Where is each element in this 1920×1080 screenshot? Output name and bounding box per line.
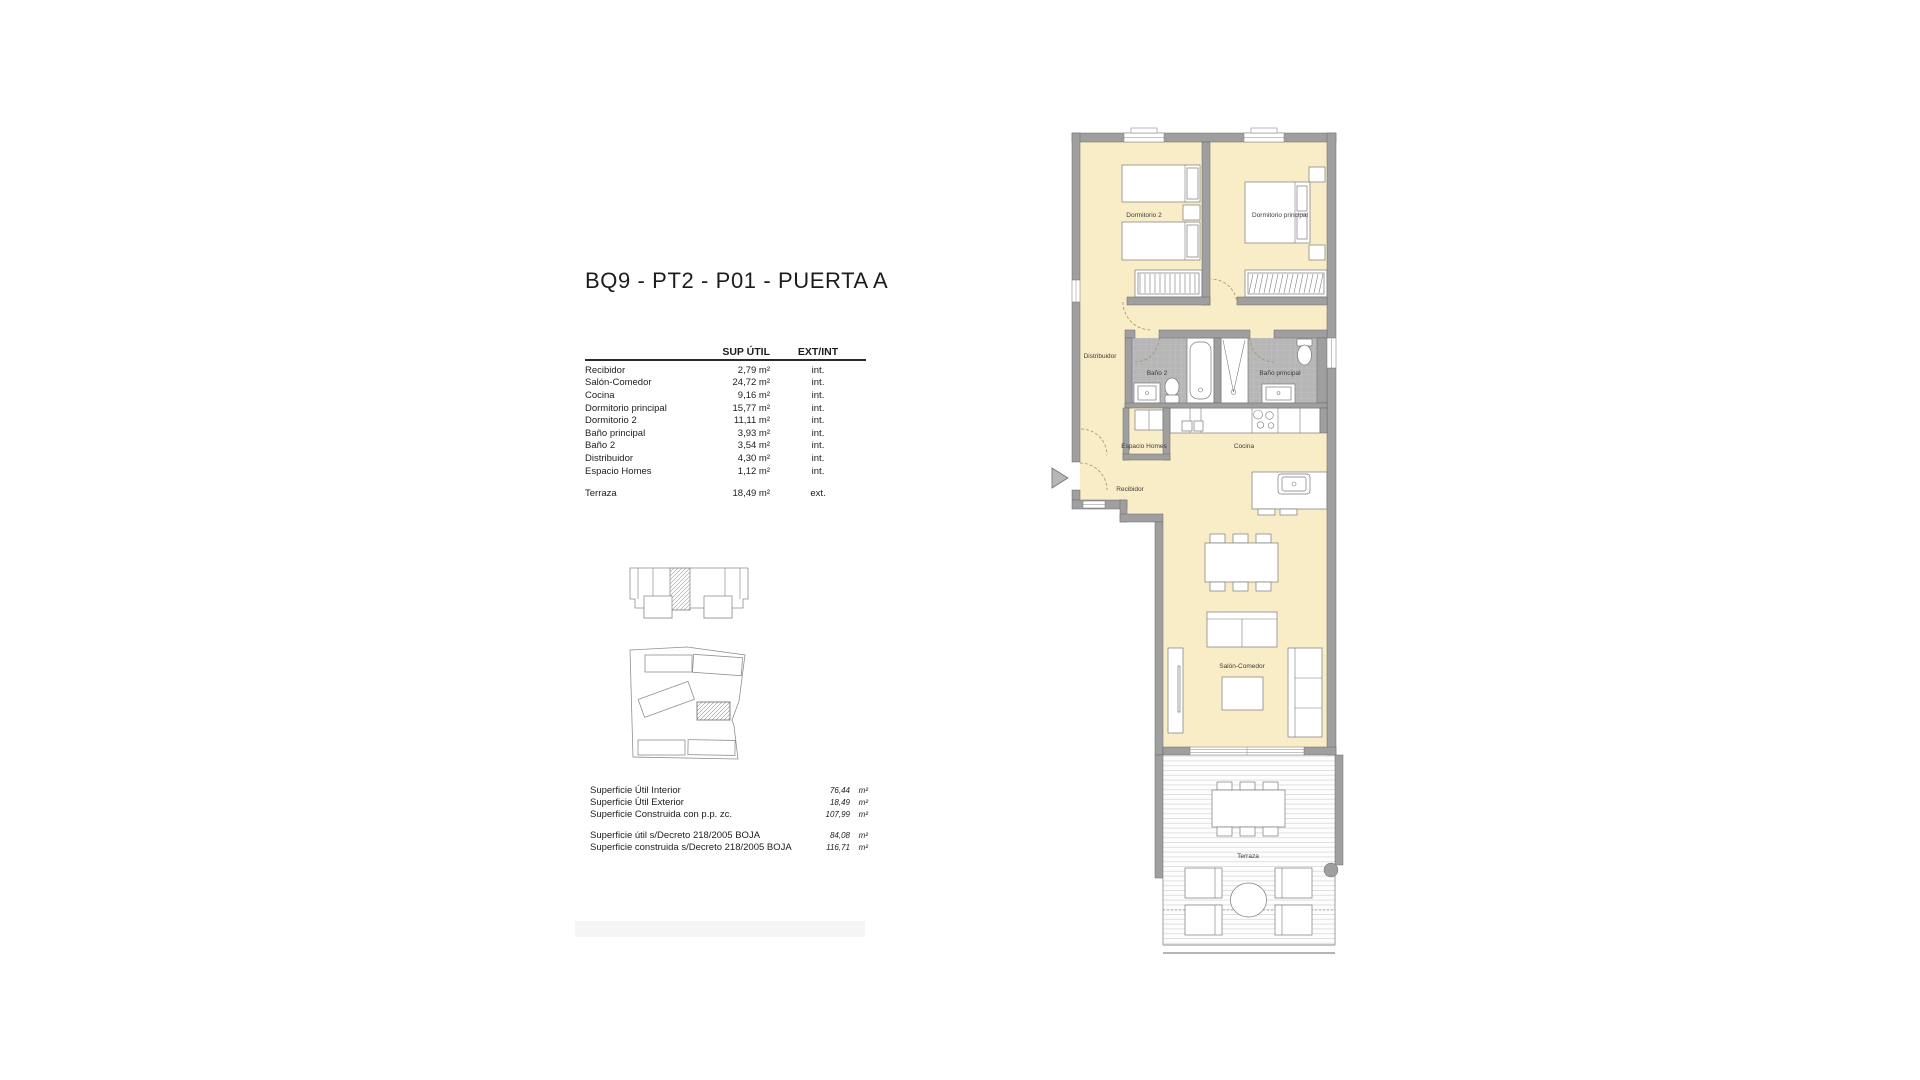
table-row-terraza: Terraza18,49 m²ext. [585,487,866,500]
site-building-highlighted [697,702,730,720]
summary-row: Superficie Construida con p.p. zc.107,99… [590,808,868,820]
kitchen-island [1252,472,1327,515]
room-label-dormitorio-2: Dormitorio 2 [1126,212,1162,219]
surface-summary: Superficie Útil Interior76,44m² Superfic… [590,784,868,854]
header-ext-int: EXT/INT [770,346,866,358]
round-table [1231,883,1267,917]
table-row: Baño 23,54 m²int. [585,440,866,453]
nightstand [1309,245,1325,260]
site-building [688,740,735,756]
site-building [692,654,742,675]
bathtub [1187,338,1214,403]
table-gap [585,477,866,487]
tv-unit [1168,648,1183,733]
site-key-plan [627,641,754,760]
shower [1221,338,1248,403]
nightstand [1183,205,1200,220]
highlighted-block [670,568,690,610]
floor-plan: Dormitorio 2 Dormitorio principal Distri… [1043,122,1345,962]
site-building [645,655,692,672]
nightstand [1309,167,1325,182]
table-row: Dormitorio 211,11 m²int. [585,414,866,427]
area-table-header: SUP ÚTIL EXT/INT [585,344,866,361]
toilet [1297,339,1312,365]
room-label-bano-2: Baño 2 [1147,370,1168,377]
summary-row-decreto: Superficie útil s/Decreto 218/2005 BOJA8… [590,830,868,842]
area-table: SUP ÚTIL EXT/INT Recibidor2,79 m²int. Sa… [585,344,866,500]
table-row: Dormitorio principal15,77 m²int. [585,402,866,415]
room-label-bano-principal: Baño principal [1259,370,1301,377]
table-row: Distribuidor4,30 m²int. [585,452,866,465]
table-row: Cocina9,16 m²int. [585,389,866,402]
summary-row: Superficie Útil Interior76,44m² [590,784,868,796]
coffee-table [1222,677,1263,710]
sliding-door [1190,747,1304,755]
sofa [1207,612,1277,647]
table-row: Recibidor2,79 m²int. [585,364,866,377]
block-tab-right [704,596,732,618]
plan-sheet: BQ9 - PT2 - P01 - PUERTA A SUP ÚTIL EXT/… [0,0,1920,1080]
room-label-recibidor: Recibidor [1116,486,1144,493]
column [1324,863,1338,877]
room-label-salon-comedor: Salón-Comedor [1219,663,1265,670]
entrance-arrow-icon [1052,468,1068,488]
outdoor-dining-table [1212,782,1285,836]
toilet [1165,378,1179,403]
room-label-cocina: Cocina [1234,443,1255,450]
room-label-distribuidor: Distribuidor [1084,353,1118,360]
block-tab-left [644,596,672,618]
kitchen-counter [1170,408,1320,433]
summary-row: Superficie Útil Exterior18,49m² [590,796,868,808]
page-title: BQ9 - PT2 - P01 - PUERTA A [585,268,888,294]
room-label-terraza: Terraza [1237,853,1259,860]
header-sup-util: SUP ÚTIL [688,346,770,358]
table-row: Espacio Homes1,12 m²int. [585,465,866,478]
dining-table [1205,534,1278,591]
block-key-plan [628,566,750,621]
sectional-sofa [1288,648,1322,737]
table-row: Baño principal3,93 m²int. [585,427,866,440]
room-label-espacio-homes: Espacio Homes [1121,443,1167,450]
room-label-dormitorio-principal: Dormitorio principal [1252,212,1309,219]
table-row: Salón-Comedor24,72 m²int. [585,377,866,390]
summary-gap [590,821,868,830]
site-building [638,740,685,755]
footer-accent-bar [575,921,865,937]
summary-row-decreto: Superficie construida s/Decreto 218/2005… [590,842,868,854]
